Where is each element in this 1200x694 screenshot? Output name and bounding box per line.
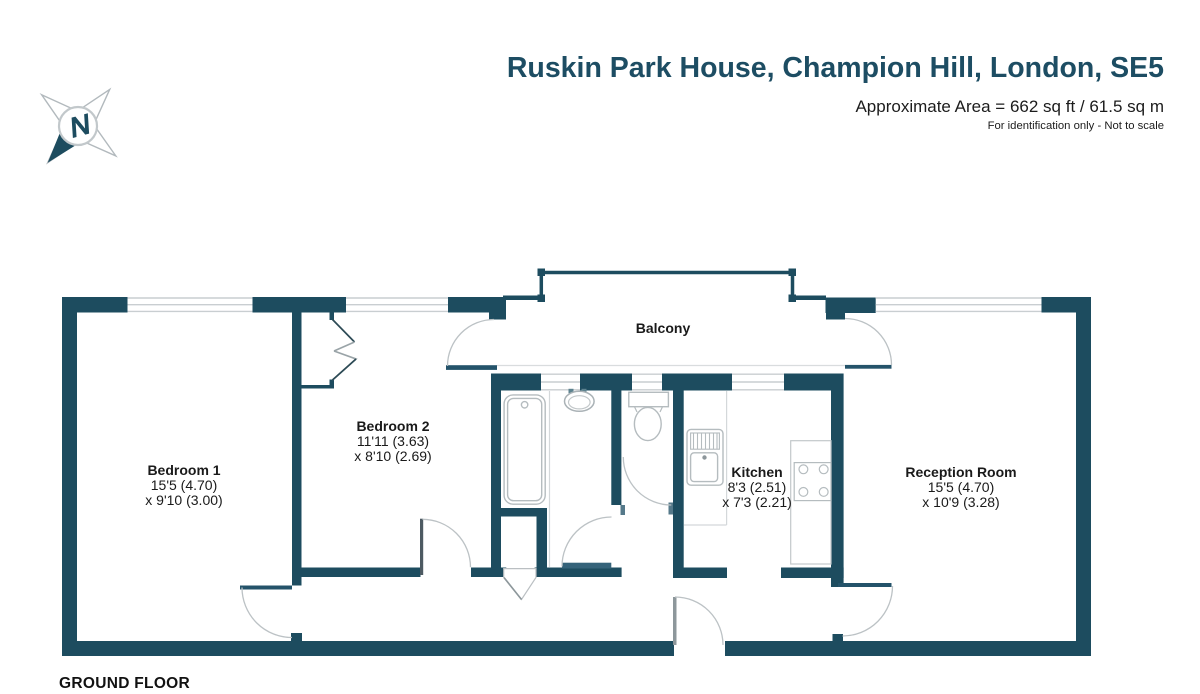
- svg-text:Approximate Area = 662 sq ft /: Approximate Area = 662 sq ft / 61.5 sq m: [855, 97, 1164, 116]
- svg-text:11'11 (3.63): 11'11 (3.63): [357, 433, 429, 449]
- svg-text:15'5 (4.70): 15'5 (4.70): [928, 479, 995, 495]
- svg-text:x 10'9 (3.28): x 10'9 (3.28): [922, 494, 999, 510]
- svg-text:Reception Room: Reception Room: [905, 464, 1016, 480]
- svg-text:x 7'3 (2.21): x 7'3 (2.21): [722, 494, 792, 510]
- svg-text:Ruskin Park House, Champion Hi: Ruskin Park House, Champion Hill, London…: [507, 52, 1164, 84]
- svg-text:GROUND FLOOR: GROUND FLOOR: [59, 675, 190, 692]
- svg-text:Kitchen: Kitchen: [731, 464, 782, 480]
- svg-text:x 8'10 (2.69): x 8'10 (2.69): [354, 448, 431, 464]
- svg-text:Balcony: Balcony: [636, 320, 691, 336]
- svg-text:Bedroom 2: Bedroom 2: [356, 418, 429, 434]
- svg-text:For identification only - Not: For identification only - Not to scale: [988, 120, 1164, 132]
- svg-text:x 9'10 (3.00): x 9'10 (3.00): [145, 492, 222, 508]
- svg-text:8'3 (2.51): 8'3 (2.51): [728, 479, 787, 495]
- svg-text:15'5 (4.70): 15'5 (4.70): [151, 477, 218, 493]
- svg-text:Bedroom 1: Bedroom 1: [147, 462, 220, 478]
